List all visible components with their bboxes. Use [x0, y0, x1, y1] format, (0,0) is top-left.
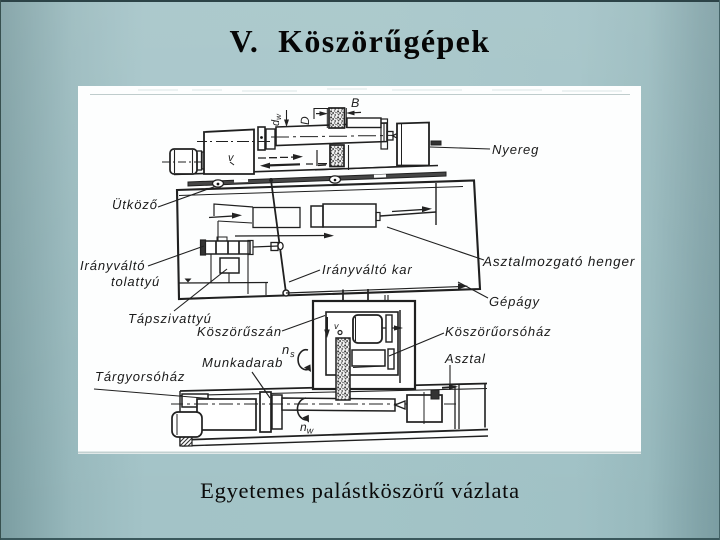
svg-text:Nyereg: Nyereg — [492, 142, 539, 157]
svg-text:tolattyú: tolattyú — [111, 274, 160, 289]
svg-text:Munkadarab: Munkadarab — [202, 355, 283, 370]
svg-text:Köszörűorsóház: Köszörűorsóház — [445, 324, 552, 339]
svg-text:dw: dw — [270, 113, 283, 126]
svg-text:Irányváltó: Irányváltó — [80, 258, 145, 273]
svg-text:Ütköző: Ütköző — [112, 197, 158, 212]
svg-text:Tárgyorsóház: Tárgyorsóház — [95, 369, 185, 384]
svg-text:B: B — [351, 96, 359, 110]
svg-text:ns: ns — [282, 342, 296, 359]
svg-text:Asztalmozgató henger: Asztalmozgató henger — [482, 254, 635, 269]
svg-text:D: D — [298, 116, 312, 125]
svg-text:Asztal: Asztal — [444, 351, 486, 366]
svg-text:Köszörűszán: Köszörűszán — [197, 324, 282, 339]
svg-text:Irányváltó kar: Irányváltó kar — [322, 262, 413, 277]
svg-text:nw: nw — [300, 420, 314, 436]
svg-text:Gépágy: Gépágy — [489, 294, 541, 309]
svg-text:v: v — [334, 321, 339, 331]
